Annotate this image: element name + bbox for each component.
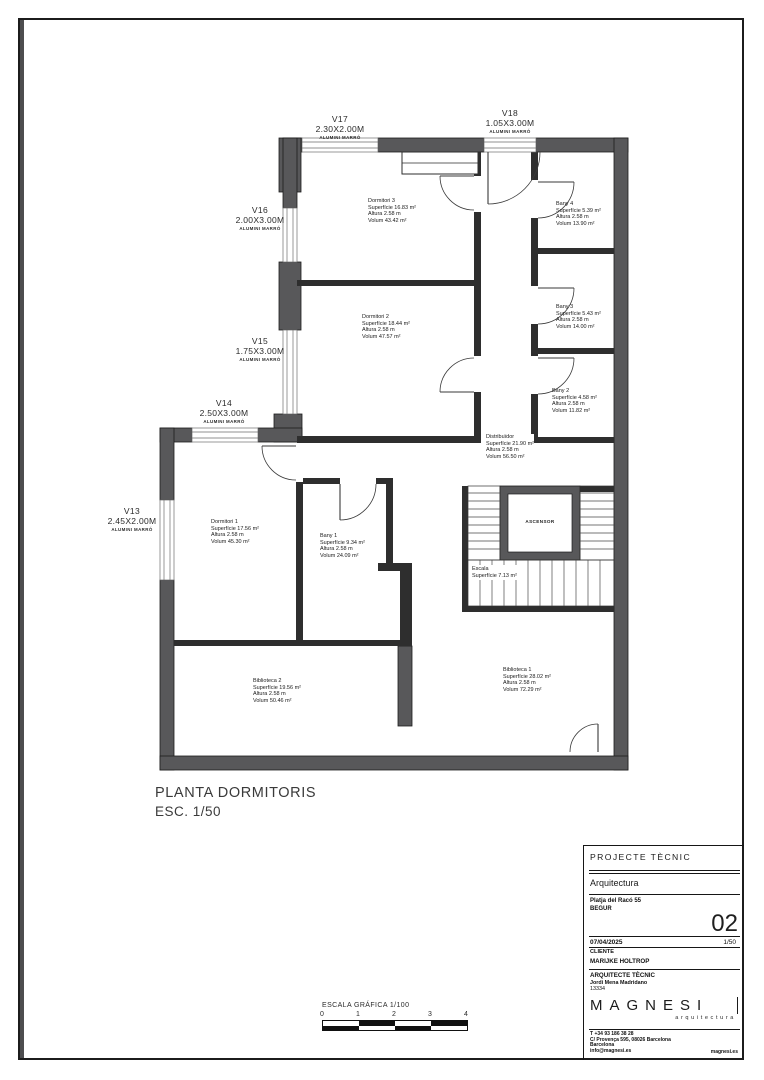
studio-logo: MAGNESI	[590, 997, 738, 1014]
contact-website: magnesi.es	[711, 1049, 738, 1055]
window-v17	[302, 138, 378, 152]
graphic-scale: ESCALA GRÁFICA 1/100 0 1 2 3 4	[322, 1002, 482, 1031]
scale-tick: 2	[392, 1011, 396, 1018]
client-label: CLIENTE	[590, 949, 614, 955]
project-address-line2: BEGUR	[590, 906, 612, 912]
room-label-ascensor: ASCENSOR	[500, 519, 580, 524]
window-label-v17: V172.30X2.00MALUMINI MARRÓ	[292, 114, 388, 140]
room-label-bany-4: Bany 4Superfície 5.39 m²Altura 2.58 mVol…	[556, 201, 601, 227]
sheet-number: 02	[711, 910, 738, 938]
discipline: Arquitectura	[590, 878, 639, 888]
drawing-title: PLANTA DORMITORIS ESC. 1/50	[155, 785, 316, 819]
drawing-scale-text: ESC. 1/50	[155, 804, 316, 819]
graphic-scale-label: ESCALA GRÁFICA 1/100	[322, 1002, 482, 1009]
door-biblioteca1	[570, 724, 598, 752]
room-label-dormitori-1: Dormitori 1Superfície 17.56 m²Altura 2.5…	[211, 519, 259, 545]
room-label-escala: EscalaSuperfície 7.13 m²	[470, 565, 519, 580]
architect-number: 13334	[590, 986, 605, 992]
title-block: PROJECTE TÈCNIC Arquitectura Platja del …	[583, 845, 744, 1060]
window-label-v15: V151.75X3.00MALUMINI MARRÓ	[212, 336, 308, 362]
window-label-v14: V142.50X3.00MALUMINI MARRÓ	[176, 398, 272, 424]
room-label-bany-2: Bany 2Superfície 4.58 m²Altura 2.58 mVol…	[552, 388, 597, 414]
studio-contact: T +34 93 186 38 28 C/ Provença 595, 0802…	[590, 1032, 671, 1054]
sheet-scale: 1/50	[723, 939, 736, 946]
doors	[262, 152, 598, 752]
door-dormitori1	[262, 446, 296, 480]
room-label-distribuidor: DistribuïdorSuperfície 21.90 m²Altura 2.…	[486, 434, 534, 460]
exterior-walls	[160, 138, 628, 770]
contact-email: info@magnesi.es	[590, 1049, 671, 1055]
window-label-v16: V162.00X3.00MALUMINI MARRÓ	[212, 205, 308, 231]
wardrobe	[402, 152, 478, 174]
studio-logo-subtitle: arquitectura	[675, 1015, 736, 1021]
door-dormitori2	[440, 358, 474, 392]
client-name: MARIJKE HOLTROP	[590, 958, 649, 965]
window-v18	[484, 138, 536, 152]
room-label-dormitori-2: Dormitori 2Superfície 18.44 m²Altura 2.5…	[362, 314, 410, 340]
room-label-dormitori-3: Dormitori 3Superfície 16.83 m²Altura 2.5…	[368, 198, 416, 224]
room-label-bany-3: Bany 3Superfície 5.43 m²Altura 2.58 mVol…	[556, 304, 601, 330]
scale-tick: 4	[464, 1011, 468, 1018]
scale-tick: 3	[428, 1011, 432, 1018]
project-address-line1: Platja del Racó 55	[590, 898, 641, 904]
door-bany1	[340, 484, 376, 520]
room-label-biblioteca-1: Biblioteca 1Superfície 28.02 m²Altura 2.…	[503, 667, 551, 693]
graphic-scale-ticks: 0 1 2 3 4	[322, 1011, 482, 1020]
window-label-v13: V132.45X2.00MALUMINI MARRÓ	[84, 506, 180, 532]
graphic-scale-bar	[322, 1020, 468, 1031]
project-type: PROJECTE TÈCNIC	[590, 852, 691, 862]
drawing-title-text: PLANTA DORMITORIS	[155, 785, 316, 801]
architect-label: ARQUITECTE TÈCNIC	[590, 972, 655, 979]
room-label-bany-1: Bany 1Superfície 9.34 m²Altura 2.58 mVol…	[320, 533, 365, 559]
scale-tick: 1	[356, 1011, 360, 1018]
door-dormitori3	[440, 176, 474, 210]
sheet-date: 07/04/2025	[590, 939, 623, 946]
window-label-v18: V181.05X3.00MALUMINI MARRÓ	[462, 108, 558, 134]
window-v14	[192, 428, 258, 442]
scale-tick: 0	[320, 1011, 324, 1018]
drawing-sheet: Dormitori 3Superfície 16.83 m²Altura 2.5…	[0, 0, 764, 1080]
room-label-biblioteca-2: Biblioteca 2Superfície 19.56 m²Altura 2.…	[253, 678, 301, 704]
